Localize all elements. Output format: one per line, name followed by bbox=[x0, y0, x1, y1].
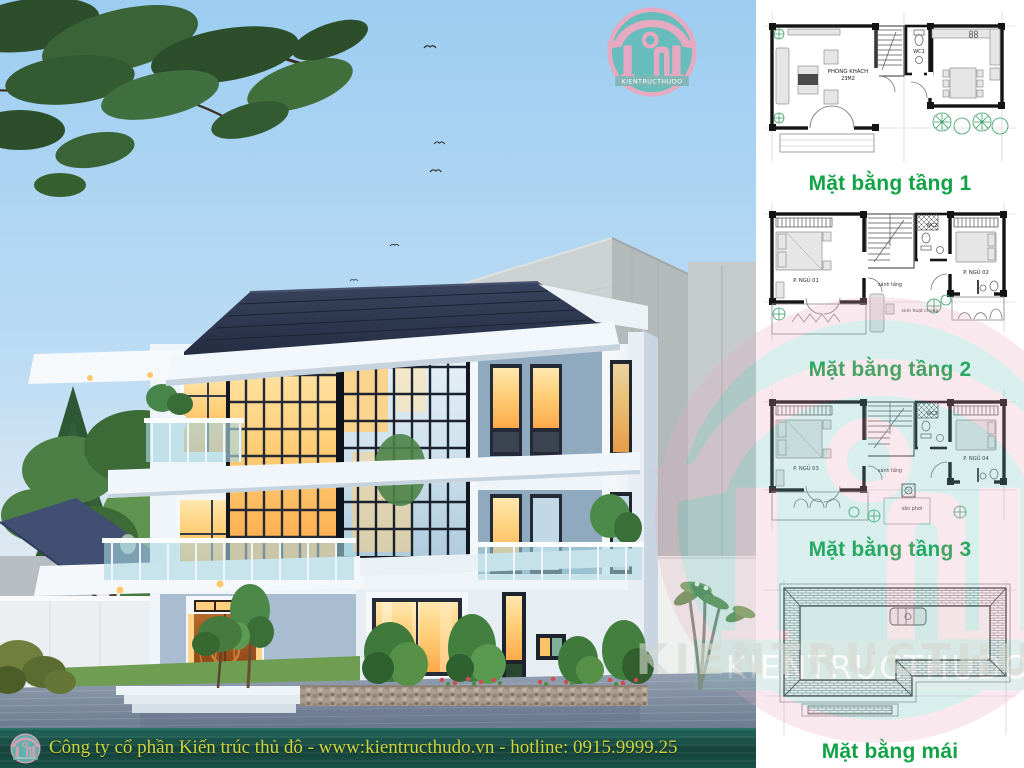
plan2-wc-label: WC2 bbox=[926, 223, 937, 229]
washing-machine bbox=[902, 484, 915, 497]
stone-planter-base bbox=[300, 686, 648, 706]
plan3-bed1-label: P. NGỦ 03 bbox=[793, 464, 819, 472]
promo-image: KIENTRUCTHUDO bbox=[0, 0, 1024, 768]
plan2-hall-label: sảnh tầng bbox=[878, 280, 902, 288]
floor-plans-panel: PHÒNG KHÁCH 23M2 WC1 Mặt bằng tầng 1 bbox=[756, 0, 1024, 768]
plan1-living-area: 23M2 bbox=[841, 76, 855, 82]
windows-3f-right bbox=[490, 360, 632, 456]
plan3-hall-label: sảnh tầng bbox=[878, 466, 902, 474]
balcony-2f bbox=[102, 534, 356, 580]
plan-caption-2: Mặt bằng tầng 2 bbox=[756, 358, 1024, 382]
house-render: KIENTRUCTHUDO bbox=[0, 0, 756, 730]
floor-plan-1: PHÒNG KHÁCH 23M2 WC1 bbox=[764, 12, 1016, 170]
plan3-wc-label: WC3 bbox=[926, 411, 937, 417]
footer-logo bbox=[10, 733, 41, 764]
plan2-bed1-label: P. NGỦ 01 bbox=[793, 276, 819, 284]
footer-company-line: Công ty cổ phần Kiến trúc thủ đô - www:k… bbox=[49, 737, 678, 759]
plan1-wc-label: WC1 bbox=[913, 49, 925, 55]
water-tank bbox=[890, 608, 926, 625]
plan-caption-4: Mặt bằng mái bbox=[756, 740, 1024, 764]
floor-plan-2: P. NGỦ 01 WC2 sảnh tầng P. NGỦ 02 sinh h… bbox=[764, 202, 1016, 354]
plan-caption-3: Mặt bằng tầng 3 bbox=[756, 538, 1024, 562]
floor-plan-3: P. NGỦ 03 WC3 sảnh tầng P. NGỦ 04 sân ph… bbox=[764, 390, 1016, 542]
logo-badge bbox=[607, 10, 697, 95]
plan1-living-label: PHÒNG KHÁCH bbox=[828, 68, 868, 75]
footer-bar: Công ty cổ phần Kiến trúc thủ đô - www:k… bbox=[0, 728, 756, 768]
entry-steps bbox=[116, 686, 312, 713]
plan3-yard-label: sân phơi bbox=[902, 505, 922, 512]
plan1-trees bbox=[933, 113, 1008, 134]
roof-plan bbox=[764, 580, 1016, 738]
plan2-bed2-label: P. NGỦ 02 bbox=[963, 268, 989, 276]
plan2-common-label: sinh hoạt chung bbox=[902, 308, 939, 314]
plan-caption-1: Mặt bằng tầng 1 bbox=[756, 172, 1024, 196]
plan3-bed2-label: P. NGỦ 04 bbox=[963, 454, 989, 462]
